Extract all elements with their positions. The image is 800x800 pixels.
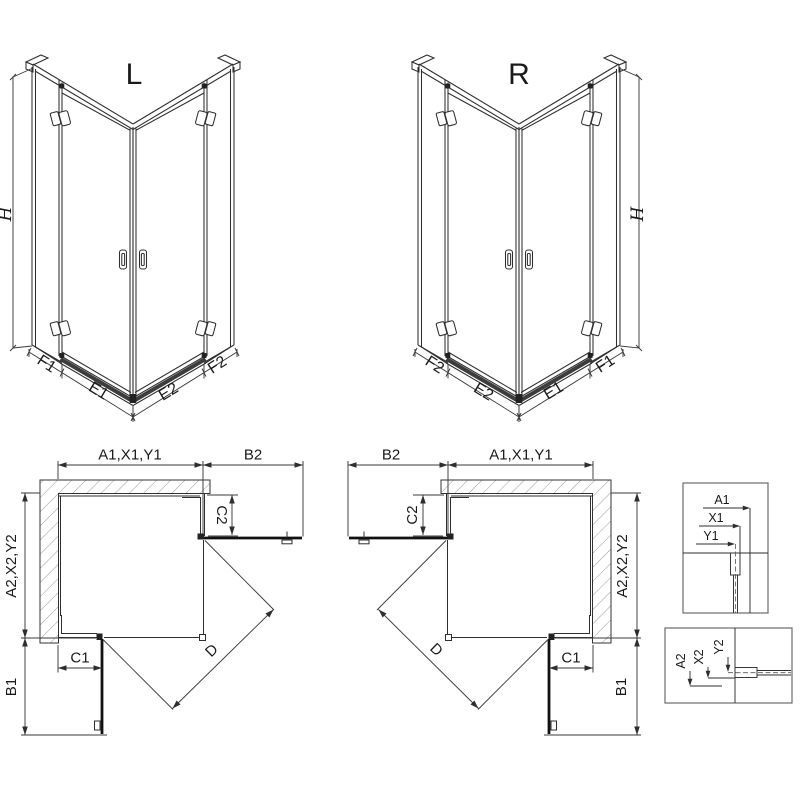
iso-view-right: R H F2 E2 E1 F1: [412, 55, 648, 422]
door-pivot: [447, 534, 454, 540]
door-handle: [95, 721, 101, 730]
iso-left-title: L: [126, 58, 143, 91]
wall-section: [441, 480, 611, 643]
dim-label-d: D: [202, 641, 222, 661]
dim-label-d-right: D: [426, 640, 446, 660]
dim-label-c2: C2: [213, 505, 230, 524]
iso-right-title: R: [508, 58, 530, 91]
corner-connector: [200, 635, 206, 641]
plan-view-right: [348, 461, 641, 735]
dim-label-f1: F1: [34, 352, 59, 376]
corner-connector: [446, 635, 452, 641]
dim-label-a2x2y2-right: A2,X2,Y2: [614, 534, 631, 597]
detail-label-y2: Y2: [712, 639, 726, 654]
dim-label-b2: B2: [244, 447, 262, 464]
dim-label-c1: C1: [70, 650, 89, 667]
door-pivot: [198, 534, 205, 540]
dim-label-f1-right: F1: [593, 352, 618, 376]
detail-label-a2: A2: [674, 653, 688, 668]
dim-label-h-left: H: [0, 205, 16, 222]
detail-label-x1: X1: [708, 511, 723, 525]
dim-label-h-right: H: [628, 205, 648, 222]
dim-label-a1x1y1: A1,X1,Y1: [98, 447, 161, 464]
dim-label-f2: F2: [205, 353, 230, 377]
technical-drawing-canvas: L H F1 E1 E2 F2 R H F2 E2 E1 F1: [0, 0, 800, 800]
dim-label-a2x2y2: A2,X2,Y2: [3, 534, 20, 597]
wall-section: [40, 480, 210, 643]
door-handle: [551, 721, 557, 730]
dimension-arrows: [22, 462, 303, 735]
plan-view-left: [21, 461, 303, 735]
detail-label-a1: A1: [714, 493, 729, 507]
dim-label-c2-right: C2: [404, 505, 421, 524]
dim-label-b1-right: B1: [613, 678, 630, 696]
shower-enclosure-drawing: L H F1 E1 E2 F2 R H F2 E2 E1 F1: [0, 0, 800, 800]
dim-label-c1-right: C1: [561, 650, 580, 667]
door-handle: [282, 540, 292, 544]
dim-label-f2-right: F2: [422, 353, 447, 377]
dim-label-b1: B1: [3, 678, 20, 696]
detail-label-x2: X2: [692, 649, 706, 664]
dim-label-b2-right: B2: [382, 447, 400, 464]
iso-view-left: L H F1 E1 E2 F2: [0, 55, 240, 422]
dim-label-a1x1y1-right: A1,X1,Y1: [489, 447, 552, 464]
door-handle: [359, 540, 369, 544]
detail-label-y1: Y1: [703, 529, 718, 543]
